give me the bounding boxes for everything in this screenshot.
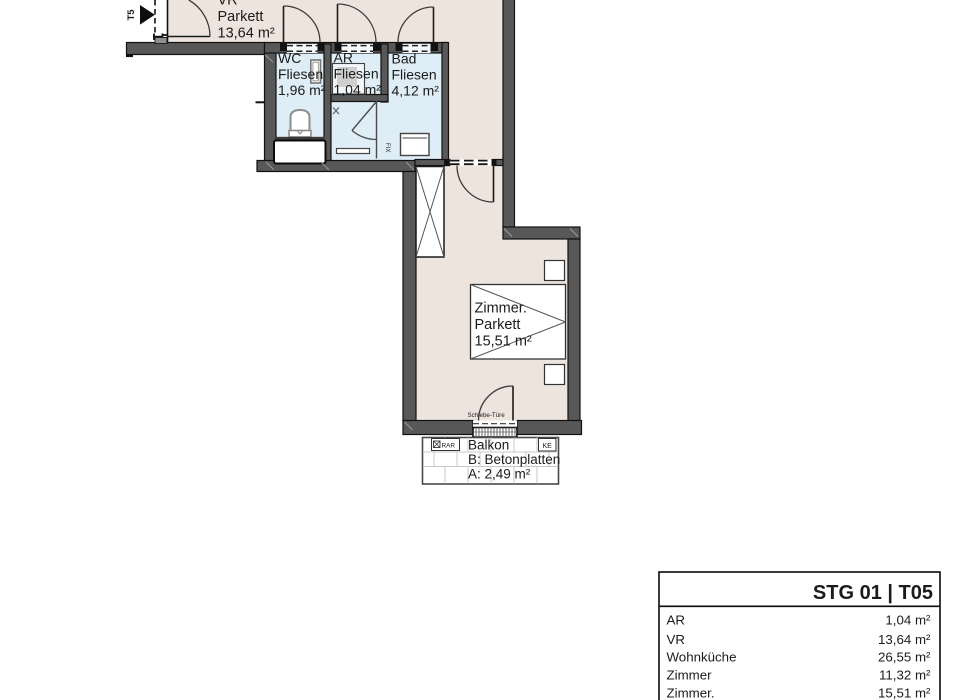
svg-text:13,64 m²: 13,64 m²: [878, 632, 931, 647]
svg-text:Fliesen: Fliesen: [334, 66, 379, 82]
svg-text:1,04 m²: 1,04 m²: [334, 82, 382, 98]
svg-text:AR: AR: [667, 613, 685, 628]
svg-text:A: 2,49 m²: A: 2,49 m²: [468, 467, 531, 482]
svg-text:26,55 m²: 26,55 m²: [878, 650, 931, 665]
svg-text:4,12 m²: 4,12 m²: [392, 83, 440, 99]
svg-text:Parkett: Parkett: [218, 9, 264, 25]
svg-text:13,64 m²: 13,64 m²: [218, 26, 275, 42]
svg-text:1,96 m²: 1,96 m²: [278, 82, 326, 98]
svg-text:RAR: RAR: [442, 443, 456, 450]
svg-text:Fliesen: Fliesen: [392, 67, 437, 83]
svg-text:WC: WC: [278, 50, 301, 66]
svg-text:T5: T5: [126, 9, 137, 21]
svg-text:Balkon: Balkon: [468, 438, 509, 453]
svg-text:Parkett: Parkett: [475, 317, 521, 333]
svg-text:Zimmer: Zimmer: [667, 668, 713, 683]
svg-text:FIX: FIX: [384, 143, 390, 152]
svg-text:15,51 m²: 15,51 m²: [475, 334, 532, 350]
svg-text:Zimmer.: Zimmer.: [667, 685, 715, 700]
svg-text:Fliesen: Fliesen: [278, 66, 323, 82]
svg-text:Bad: Bad: [392, 51, 417, 67]
svg-text:STG 01 | T05: STG 01 | T05: [813, 582, 933, 604]
svg-text:KE: KE: [543, 443, 553, 450]
svg-text:11,32 m²: 11,32 m²: [879, 668, 931, 683]
svg-text:VR: VR: [218, 0, 238, 9]
svg-text:Zimmer.: Zimmer.: [475, 301, 527, 317]
svg-text:B: Betonplatten: B: Betonplatten: [468, 452, 560, 467]
svg-text:AR: AR: [334, 50, 353, 66]
svg-text:1,04 m²: 1,04 m²: [885, 613, 931, 628]
svg-text:VR: VR: [667, 632, 685, 647]
svg-text:Wohnküche: Wohnküche: [667, 650, 737, 665]
svg-text:15,51 m²: 15,51 m²: [878, 685, 931, 700]
svg-text:Schiebe-Türe: Schiebe-Türe: [468, 412, 506, 419]
